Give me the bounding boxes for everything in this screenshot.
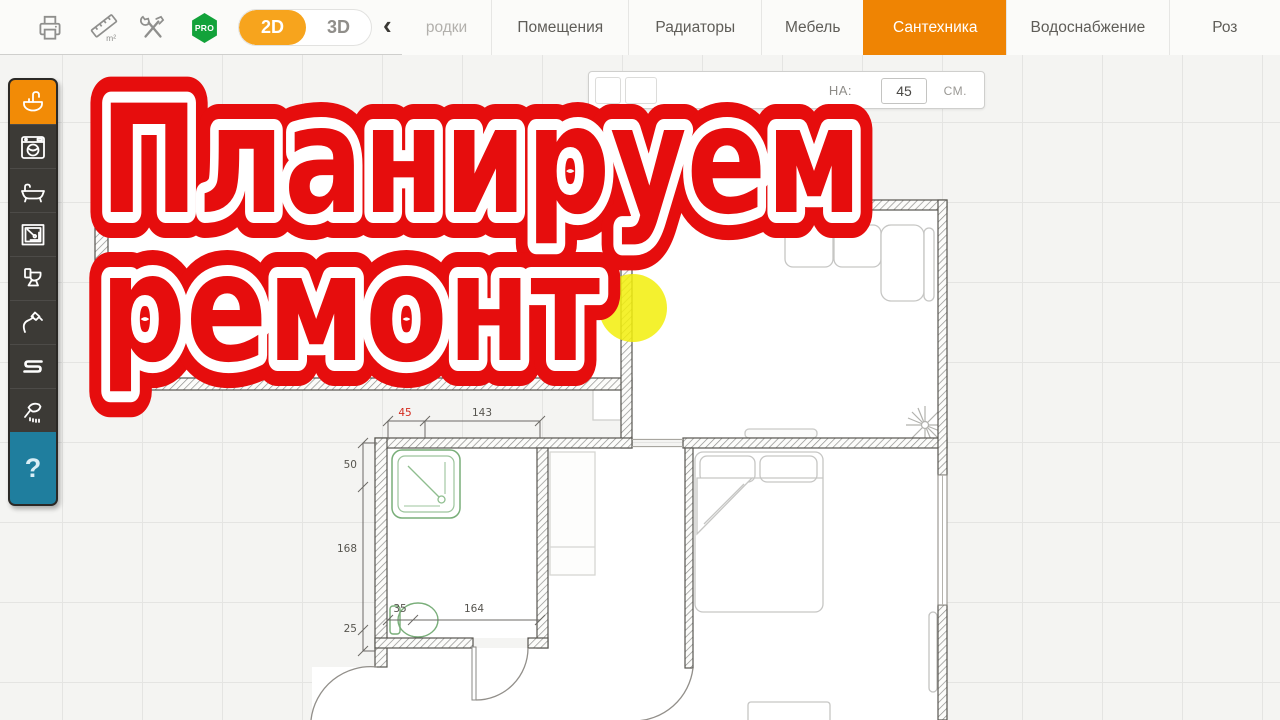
sidebar-item-bathtub[interactable] (10, 168, 56, 212)
width-input[interactable] (881, 78, 927, 104)
sidebar-item-toilet[interactable] (10, 256, 56, 300)
tab-label: Сантехника (893, 19, 977, 37)
tab-сантехника[interactable]: Сантехника (863, 0, 1006, 55)
tab-водоснабжение[interactable]: Водоснабжение (1006, 0, 1168, 55)
floor-planner-app: 50 168 25 35 164 45 143 НА: см. Планируе… (0, 0, 1280, 720)
tools-icon[interactable] (137, 12, 169, 44)
sidebar-item-shower-cabin[interactable] (10, 212, 56, 256)
bathtub-icon (18, 176, 48, 206)
width-field-label: НА: (829, 83, 852, 98)
view-2d-button[interactable]: 2D (239, 10, 306, 45)
unit-label: см. (944, 84, 967, 98)
shower-head-icon (18, 396, 48, 426)
property-bar: НА: см. (588, 71, 985, 109)
tab-помещения[interactable]: Помещения (491, 0, 628, 55)
category-tab-bar: родкиПомещенияРадиаторыМебельСантехникаВ… (402, 0, 1280, 55)
shower-cabin-icon (18, 220, 48, 250)
tab-роз[interactable]: Роз (1169, 0, 1280, 55)
tab-label: Радиаторы (655, 19, 735, 37)
sidebar-item-towel-rail[interactable] (10, 344, 56, 388)
tab-label: родки (426, 19, 467, 37)
fixtures-sidebar: ? (8, 78, 58, 506)
help-label: ? (25, 453, 42, 484)
sidebar-item-washing-machine[interactable] (10, 124, 56, 168)
pro-badge: PRO (191, 13, 218, 43)
help-button[interactable]: ? (10, 432, 56, 504)
view-mode-toggle: 2D 3D (238, 9, 372, 46)
washing-machine-icon (18, 132, 48, 162)
property-tool-button[interactable] (625, 77, 657, 104)
sink-icon (18, 87, 48, 117)
tab-label: Роз (1212, 19, 1237, 37)
property-tool-button[interactable] (595, 77, 621, 104)
pro-badge-label: PRO (195, 23, 214, 33)
toilet-icon (18, 264, 48, 294)
sidebar-item-sink[interactable] (10, 80, 56, 124)
measure-area-icon[interactable]: m² (88, 12, 120, 44)
sidebar-item-shower-head[interactable] (10, 388, 56, 432)
view-3d-button[interactable]: 3D (306, 10, 371, 45)
tab-мебель[interactable]: Мебель (761, 0, 863, 55)
hygienic-sprayer-icon (18, 308, 48, 338)
tab-label: Помещения (517, 19, 603, 37)
print-icon[interactable] (34, 12, 66, 44)
tab-радиаторы[interactable]: Радиаторы (628, 0, 761, 55)
top-toolbar: m² PRO 2D 3D ‹ родкиПомещенияРадиаторыМе… (0, 0, 1280, 55)
towel-rail-icon (18, 352, 48, 382)
tab-родки[interactable]: родки (402, 0, 491, 55)
tab-label: Мебель (785, 19, 840, 37)
tab-label: Водоснабжение (1031, 19, 1146, 37)
plan-canvas[interactable] (0, 55, 1280, 720)
tabs-scroll-left-chevron[interactable]: ‹ (383, 10, 392, 41)
sidebar-item-hygienic-sprayer[interactable] (10, 300, 56, 344)
ruler-unit-label: m² (106, 33, 116, 43)
